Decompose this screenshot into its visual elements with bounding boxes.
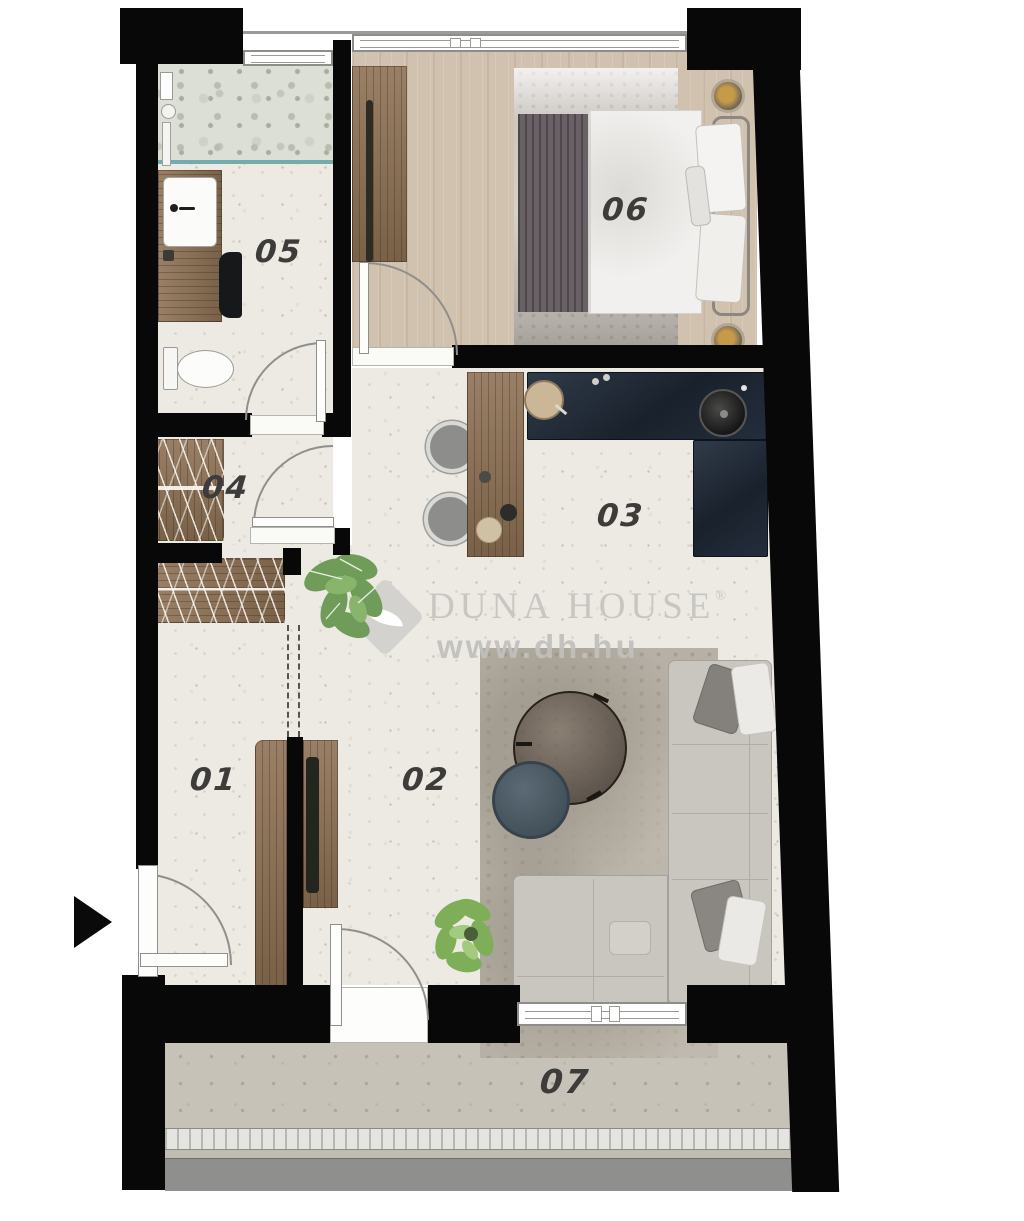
shower-rail (162, 122, 171, 166)
wall-bottom-segment-2 (428, 985, 520, 1043)
wall-top-left-block (120, 8, 243, 64)
nightstand-lamp (711, 79, 745, 113)
room-label-bedroom: 06 (600, 192, 650, 228)
table-detail (516, 742, 532, 746)
room-label-entrance: 01 (188, 762, 238, 798)
brand-text: Duna House (428, 586, 715, 627)
tv-partition-wall (287, 737, 303, 987)
sink-faucet-spout (179, 207, 195, 210)
window-glass-line (525, 1011, 679, 1019)
watermark-brand: Duna House® (428, 585, 726, 628)
registered-mark: ® (715, 589, 726, 604)
sofa-seam (672, 813, 768, 814)
shower-floor (158, 64, 333, 164)
hanger-pattern (152, 558, 285, 623)
floor-plan-canvas: Duna House® www.dh.hu (0, 0, 1024, 1221)
balcony-edge-strip (165, 1150, 810, 1158)
entrance-arrow-icon (74, 896, 112, 948)
kitchen-sink (524, 380, 564, 420)
window-glass-line (251, 55, 325, 63)
sofa-seam (593, 879, 594, 1001)
wardrobe-handle (366, 100, 373, 262)
hall-door-threshold (250, 527, 335, 544)
wall-left (136, 64, 158, 869)
shower-glass-panel (158, 160, 333, 164)
entrance-wardrobe (152, 558, 285, 623)
bed-pillow (695, 213, 747, 304)
wall-left-bottom-block (122, 975, 165, 1190)
bathroom-towel-roll (219, 252, 242, 318)
wall-top-right-block (687, 8, 801, 70)
sofa-seat-cushion (609, 921, 651, 955)
wall-closet-south (136, 543, 222, 563)
living-room-window (517, 1002, 687, 1026)
sofa-backrest-seam (517, 976, 664, 977)
spice-jar (603, 374, 610, 381)
stove-pot (699, 389, 747, 437)
wall-hall-door-stub (333, 528, 350, 555)
counter-dot (741, 385, 747, 391)
entry-door-leaf (140, 953, 228, 967)
bed-blanket (518, 114, 592, 312)
plate (476, 517, 502, 543)
window-glass-line (360, 40, 679, 48)
small-bowl (479, 471, 491, 483)
bathroom-accessory (163, 250, 174, 261)
room-label-kitchen: 03 (595, 498, 645, 534)
wall-bathroom-bedroom-divider (333, 40, 351, 437)
bedroom-window (352, 34, 687, 52)
coffee-table-small (492, 761, 570, 839)
sofa-seam (672, 879, 768, 880)
balcony-outer-ledge (165, 1158, 810, 1191)
wall-bathroom-south (136, 413, 252, 437)
toilet-bowl (177, 350, 234, 388)
coffee-cup (500, 504, 517, 521)
balcony-door-leaf (330, 924, 342, 1026)
shower-head (161, 104, 176, 119)
bathroom-door-leaf (316, 340, 326, 422)
bedroom-wardrobe (352, 66, 407, 262)
wall-entrance-stub (283, 548, 301, 575)
wall-bathroom-south-stub (322, 413, 351, 437)
room-label-living: 02 (400, 762, 450, 798)
bedroom-door-leaf (359, 262, 369, 354)
spice-jar (592, 378, 599, 385)
wall-bottom-segment-1 (165, 985, 330, 1043)
bathroom-window (243, 50, 333, 66)
wall-bedroom-south (452, 345, 802, 368)
balcony-railing (165, 1128, 810, 1150)
wall-bottom-segment-3 (687, 985, 800, 1043)
sink-faucet (170, 204, 178, 212)
sofa-seam (672, 744, 768, 745)
window-mullion (450, 38, 461, 48)
window-mullion (609, 1006, 620, 1022)
window-mullion (591, 1006, 602, 1022)
window-mullion (470, 38, 481, 48)
watermark-url: www.dh.hu (437, 628, 639, 666)
hall-door-leaf (252, 517, 334, 527)
room-label-bathroom: 05 (253, 234, 303, 270)
bathroom-sink (163, 177, 217, 247)
toilet-tank (163, 347, 178, 390)
room-label-closet: 04 (200, 470, 250, 506)
entrance-console (255, 740, 287, 986)
floor-plant (424, 890, 500, 990)
pot-knob (720, 410, 728, 418)
room-label-balcony: 07 (538, 1062, 591, 1101)
monstera-plant (296, 545, 392, 645)
tv-screen (306, 757, 319, 893)
balcony (165, 1043, 810, 1190)
kitchen-counter-right-run (693, 440, 768, 557)
shower-column (160, 72, 173, 100)
